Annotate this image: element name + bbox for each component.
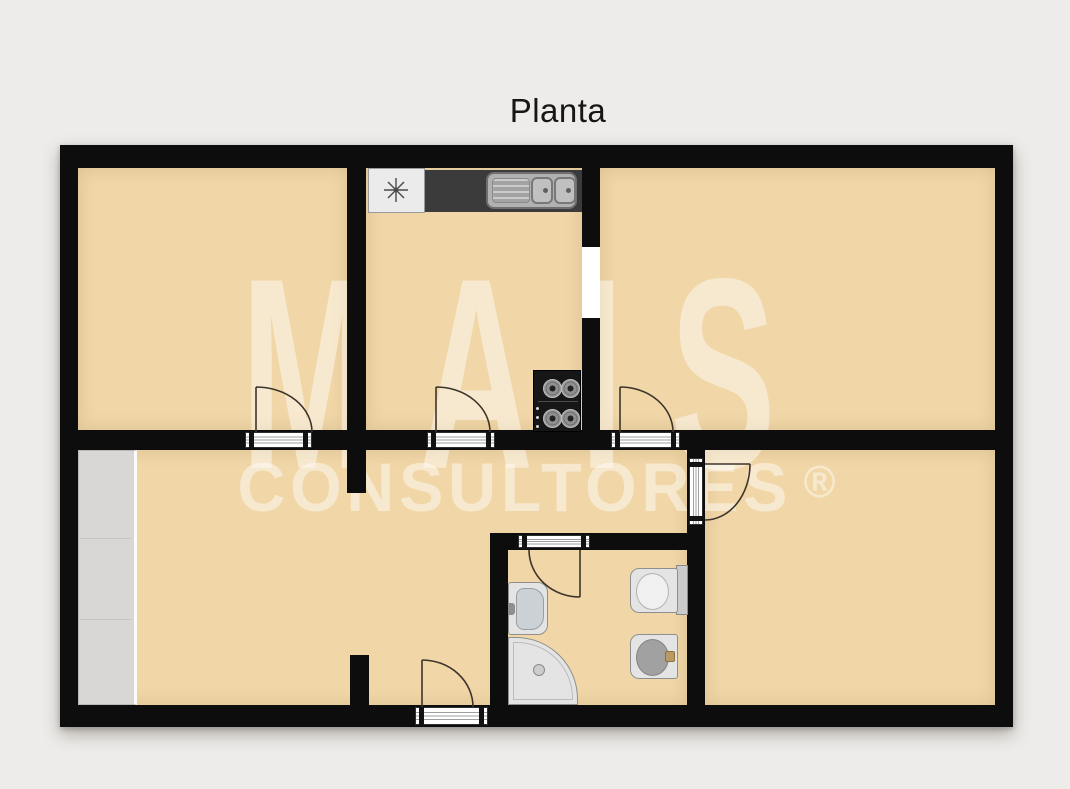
page-title: Planta xyxy=(23,92,1070,130)
door-swing-room-bottom-right xyxy=(705,464,750,520)
door-swings xyxy=(60,145,1013,727)
door-swing-kitchen xyxy=(436,387,490,432)
door-swing-room-top-right xyxy=(620,387,673,432)
door-swing-entrance xyxy=(422,660,473,707)
floor-plan-page: Planta MAIS CONSULTORES® xyxy=(0,0,1070,789)
door-swing-bedroom-top-left xyxy=(256,387,312,432)
door-swing-bathroom xyxy=(529,550,580,597)
floor-plan: MAIS CONSULTORES® xyxy=(60,145,1013,727)
